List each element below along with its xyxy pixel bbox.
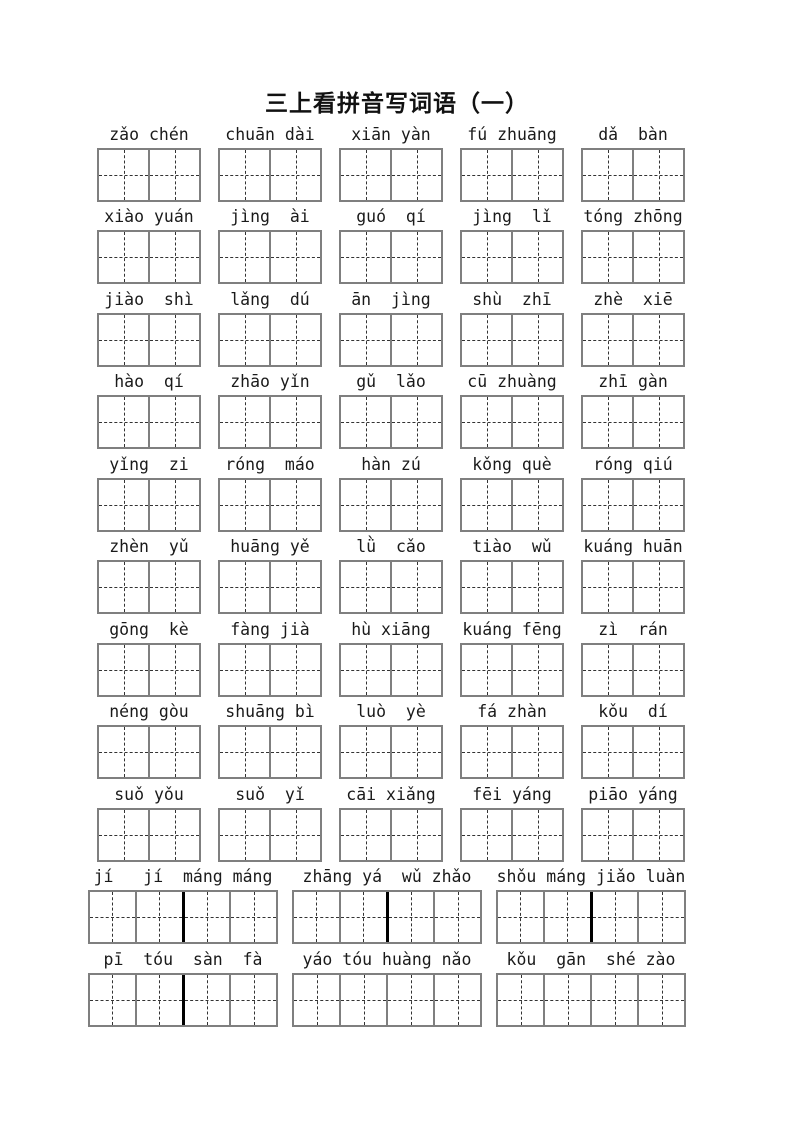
word-block: hù xiāng: [339, 614, 443, 697]
word-block: tiào wǔ: [460, 532, 564, 615]
writing-cell: [341, 480, 390, 530]
writing-grid: [339, 808, 443, 862]
writing-cell: [632, 480, 683, 530]
word-block: ān jìng: [339, 284, 443, 367]
writing-cell: [220, 315, 269, 365]
writing-cell: [269, 232, 320, 282]
writing-cell: [148, 810, 199, 860]
writing-grid: [339, 230, 443, 284]
writing-grid: [581, 313, 685, 367]
pinyin-label: jiào shì: [97, 287, 201, 313]
pinyin-label: jìng ài: [218, 204, 322, 230]
pinyin-label: zhèn yǔ: [97, 534, 201, 560]
writing-cell: [229, 892, 276, 942]
writing-cell: [386, 975, 433, 1025]
word-block: piāo yáng: [581, 779, 685, 862]
writing-cell: [390, 397, 441, 447]
writing-grid: [581, 478, 685, 532]
writing-grid: [218, 148, 322, 202]
pinyin-grid-row: hào qízhāo yǐngǔ lǎocū zhuàngzhī gàn: [0, 367, 794, 450]
word-block: néng gòu: [97, 697, 201, 780]
writing-cell: [590, 892, 638, 942]
writing-cell: [99, 562, 148, 612]
writing-grid: [97, 313, 201, 367]
pinyin-label: shuāng bì: [218, 699, 322, 725]
pinyin-label: kuáng huān: [581, 534, 685, 560]
writing-grid: [496, 890, 686, 944]
writing-cell: [341, 315, 390, 365]
pinyin-grid-row: gōng kèfàng jiàhù xiāngkuáng fēngzì rán: [0, 614, 794, 697]
writing-grid: [218, 395, 322, 449]
writing-cell: [269, 562, 320, 612]
writing-grid: [97, 808, 201, 862]
pinyin-grid-row: yǐng ziróng máohàn zúkǒng quèróng qiú: [0, 449, 794, 532]
writing-cell: [99, 315, 148, 365]
writing-grid: [460, 148, 564, 202]
writing-grid: [97, 478, 201, 532]
writing-cell: [99, 645, 148, 695]
word-block: kǒu gān shé zào: [496, 944, 686, 1027]
writing-cell: [220, 397, 269, 447]
page-title: 三上看拼音写词语（一）: [0, 84, 794, 118]
writing-grid: [218, 478, 322, 532]
word-block: jiào shì: [97, 284, 201, 367]
writing-cell: [90, 975, 135, 1025]
pinyin-label: yǐng zi: [97, 452, 201, 478]
writing-cell: [543, 975, 590, 1025]
writing-cell: [90, 892, 135, 942]
pinyin-label: suǒ yǒu: [97, 782, 201, 808]
pinyin-label: jìng lǐ: [460, 204, 564, 230]
pinyin-label: hù xiāng: [339, 617, 443, 643]
pinyin-grid-row: xiào yuánjìng àiguó qíjìng lǐtóng zhōng: [0, 202, 794, 285]
writing-cell: [511, 727, 562, 777]
writing-grid: [292, 973, 482, 1027]
word-block: gǔ lǎo: [339, 367, 443, 450]
pinyin-label: xiān yàn: [339, 122, 443, 148]
pinyin-label: róng qiú: [581, 452, 685, 478]
writing-cell: [294, 975, 339, 1025]
writing-grid: [496, 973, 686, 1027]
writing-cell: [632, 727, 683, 777]
pinyin-label: kǒng què: [460, 452, 564, 478]
writing-cell: [637, 975, 684, 1025]
pinyin-label: lǜ cǎo: [339, 534, 443, 560]
pinyin-label: hàn zú: [339, 452, 443, 478]
word-block: kuáng huān: [581, 532, 685, 615]
word-block: fá zhàn: [460, 697, 564, 780]
writing-cell: [637, 892, 684, 942]
word-block: zhāng yá wǔ zhǎo: [292, 862, 482, 945]
writing-cell: [135, 892, 182, 942]
writing-cell: [583, 397, 632, 447]
writing-grid: [339, 560, 443, 614]
writing-cell: [632, 315, 683, 365]
writing-grid: [581, 808, 685, 862]
pinyin-label: cū zhuàng: [460, 369, 564, 395]
word-block: jìng ài: [218, 202, 322, 285]
writing-cell: [583, 480, 632, 530]
word-block: shǒu máng jiǎo luàn: [496, 862, 686, 945]
writing-grid: [218, 560, 322, 614]
pinyin-grid-row: zǎo chénchuān dàixiān yànfú zhuāngdǎ bàn: [0, 119, 794, 202]
word-block: cū zhuàng: [460, 367, 564, 450]
writing-cell: [583, 232, 632, 282]
pinyin-label: luò yè: [339, 699, 443, 725]
writing-cell: [148, 232, 199, 282]
writing-grid: [460, 313, 564, 367]
writing-cell: [632, 810, 683, 860]
pinyin-label: zhāo yǐn: [218, 369, 322, 395]
writing-cell: [220, 480, 269, 530]
pinyin-label: cāi xiǎng: [339, 782, 443, 808]
writing-cell: [433, 975, 480, 1025]
word-block: fēi yáng: [460, 779, 564, 862]
word-block: zhī gàn: [581, 367, 685, 450]
writing-cell: [99, 397, 148, 447]
word-block: jí jí máng máng: [88, 862, 278, 945]
pinyin-label: yáo tóu huàng nǎo: [292, 947, 482, 973]
writing-grid: [97, 148, 201, 202]
word-block: xiào yuán: [97, 202, 201, 285]
pinyin-label: piāo yáng: [581, 782, 685, 808]
pinyin-label: tóng zhōng: [581, 204, 685, 230]
writing-cell: [148, 315, 199, 365]
writing-grid: [339, 148, 443, 202]
writing-cell: [341, 727, 390, 777]
writing-cell: [220, 645, 269, 695]
word-block: zhè xiē: [581, 284, 685, 367]
pinyin-label: kǒu dí: [581, 699, 685, 725]
writing-cell: [339, 975, 386, 1025]
pinyin-label: fá zhàn: [460, 699, 564, 725]
writing-cell: [543, 892, 590, 942]
worksheet-body: zǎo chénchuān dàixiān yànfú zhuāngdǎ bàn…: [0, 119, 794, 1027]
writing-cell: [99, 150, 148, 200]
pinyin-label: ān jìng: [339, 287, 443, 313]
writing-grid: [581, 148, 685, 202]
writing-cell: [386, 892, 434, 942]
writing-cell: [498, 892, 543, 942]
writing-grid: [97, 643, 201, 697]
writing-cell: [390, 562, 441, 612]
writing-grid: [460, 230, 564, 284]
pinyin-label: kǒu gān shé zào: [496, 947, 686, 973]
writing-cell: [220, 150, 269, 200]
writing-cell: [294, 892, 339, 942]
writing-cell: [390, 727, 441, 777]
pinyin-label: fēi yáng: [460, 782, 564, 808]
word-block: kǒu dí: [581, 697, 685, 780]
pinyin-label: shǒu máng jiǎo luàn: [496, 864, 686, 890]
pinyin-label: fú zhuāng: [460, 122, 564, 148]
pinyin-label: chuān dài: [218, 122, 322, 148]
word-block: huāng yě: [218, 532, 322, 615]
pinyin-label: shù zhī: [460, 287, 564, 313]
writing-cell: [632, 397, 683, 447]
writing-grid: [460, 478, 564, 532]
writing-grid: [292, 890, 482, 944]
pinyin-grid-row: jí jí máng mángzhāng yá wǔ zhǎoshǒu máng…: [0, 862, 794, 945]
word-block: yáo tóu huàng nǎo: [292, 944, 482, 1027]
writing-cell: [148, 562, 199, 612]
writing-cell: [462, 232, 511, 282]
pinyin-label: zhī gàn: [581, 369, 685, 395]
word-block: zhāo yǐn: [218, 367, 322, 450]
pinyin-label: dǎ bàn: [581, 122, 685, 148]
pinyin-grid-row: zhèn yǔhuāng yělǜ cǎotiào wǔkuáng huān: [0, 532, 794, 615]
word-block: yǐng zi: [97, 449, 201, 532]
word-block: suǒ yǐ: [218, 779, 322, 862]
writing-cell: [583, 727, 632, 777]
pinyin-label: pī tóu sàn fà: [88, 947, 278, 973]
writing-grid: [88, 973, 278, 1027]
word-block: zhèn yǔ: [97, 532, 201, 615]
word-block: guó qí: [339, 202, 443, 285]
worksheet-page: 三上看拼音写词语（一） zǎo chénchuān dàixiān yànfú …: [0, 0, 794, 1122]
word-block: shuāng bì: [218, 697, 322, 780]
writing-cell: [511, 150, 562, 200]
writing-grid: [97, 560, 201, 614]
writing-cell: [341, 645, 390, 695]
writing-cell: [632, 562, 683, 612]
word-block: hàn zú: [339, 449, 443, 532]
writing-cell: [390, 480, 441, 530]
word-block: kǒng què: [460, 449, 564, 532]
writing-grid: [581, 643, 685, 697]
writing-cell: [390, 232, 441, 282]
writing-cell: [269, 810, 320, 860]
pinyin-label: gōng kè: [97, 617, 201, 643]
writing-cell: [583, 315, 632, 365]
pinyin-label: zhè xiē: [581, 287, 685, 313]
writing-cell: [269, 315, 320, 365]
pinyin-grid-row: pī tóu sàn fàyáo tóu huàng nǎokǒu gān sh…: [0, 944, 794, 1027]
writing-cell: [99, 810, 148, 860]
word-block: jìng lǐ: [460, 202, 564, 285]
word-block: shù zhī: [460, 284, 564, 367]
writing-cell: [583, 150, 632, 200]
word-block: zì rán: [581, 614, 685, 697]
writing-cell: [269, 150, 320, 200]
writing-grid: [581, 560, 685, 614]
writing-cell: [632, 645, 683, 695]
writing-grid: [339, 395, 443, 449]
pinyin-label: zì rán: [581, 617, 685, 643]
writing-grid: [460, 560, 564, 614]
writing-cell: [99, 480, 148, 530]
word-block: cāi xiǎng: [339, 779, 443, 862]
word-block: luò yè: [339, 697, 443, 780]
writing-grid: [97, 230, 201, 284]
writing-grid: [218, 313, 322, 367]
writing-cell: [511, 645, 562, 695]
writing-grid: [339, 643, 443, 697]
writing-cell: [511, 810, 562, 860]
word-block: róng qiú: [581, 449, 685, 532]
pinyin-grid-row: suǒ yǒusuǒ yǐcāi xiǎngfēi yángpiāo yáng: [0, 779, 794, 862]
writing-grid: [97, 725, 201, 779]
word-block: zǎo chén: [97, 119, 201, 202]
writing-cell: [511, 480, 562, 530]
pinyin-label: fàng jià: [218, 617, 322, 643]
word-block: tóng zhōng: [581, 202, 685, 285]
writing-cell: [632, 150, 683, 200]
writing-cell: [229, 975, 276, 1025]
writing-cell: [99, 232, 148, 282]
writing-cell: [511, 315, 562, 365]
writing-grid: [218, 643, 322, 697]
writing-cell: [269, 727, 320, 777]
writing-cell: [462, 315, 511, 365]
writing-grid: [218, 808, 322, 862]
writing-cell: [148, 645, 199, 695]
writing-cell: [99, 727, 148, 777]
pinyin-label: kuáng fēng: [460, 617, 564, 643]
writing-grid: [581, 230, 685, 284]
writing-cell: [590, 975, 637, 1025]
writing-grid: [339, 478, 443, 532]
writing-grid: [581, 725, 685, 779]
writing-cell: [220, 727, 269, 777]
writing-cell: [390, 645, 441, 695]
writing-cell: [341, 232, 390, 282]
writing-cell: [390, 150, 441, 200]
pinyin-label: róng máo: [218, 452, 322, 478]
writing-cell: [269, 645, 320, 695]
writing-grid: [339, 313, 443, 367]
pinyin-label: tiào wǔ: [460, 534, 564, 560]
pinyin-grid-row: néng gòushuāng bìluò yèfá zhànkǒu dí: [0, 697, 794, 780]
pinyin-label: huāng yě: [218, 534, 322, 560]
pinyin-label: gǔ lǎo: [339, 369, 443, 395]
writing-cell: [135, 975, 182, 1025]
pinyin-label: zǎo chén: [97, 122, 201, 148]
writing-grid: [460, 643, 564, 697]
pinyin-label: lǎng dú: [218, 287, 322, 313]
writing-grid: [460, 395, 564, 449]
writing-cell: [390, 810, 441, 860]
writing-cell: [182, 892, 230, 942]
writing-cell: [341, 810, 390, 860]
writing-cell: [462, 150, 511, 200]
word-block: suǒ yǒu: [97, 779, 201, 862]
writing-cell: [341, 150, 390, 200]
writing-grid: [460, 808, 564, 862]
writing-cell: [339, 892, 386, 942]
writing-cell: [341, 397, 390, 447]
pinyin-label: zhāng yá wǔ zhǎo: [292, 864, 482, 890]
word-block: xiān yàn: [339, 119, 443, 202]
writing-cell: [511, 397, 562, 447]
writing-cell: [462, 645, 511, 695]
writing-grid: [88, 890, 278, 944]
writing-cell: [583, 645, 632, 695]
writing-cell: [583, 810, 632, 860]
word-block: dǎ bàn: [581, 119, 685, 202]
writing-cell: [148, 397, 199, 447]
word-block: fú zhuāng: [460, 119, 564, 202]
writing-cell: [220, 810, 269, 860]
writing-cell: [462, 480, 511, 530]
writing-grid: [218, 725, 322, 779]
writing-cell: [632, 232, 683, 282]
word-block: lǜ cǎo: [339, 532, 443, 615]
writing-cell: [220, 562, 269, 612]
word-block: róng máo: [218, 449, 322, 532]
writing-cell: [511, 232, 562, 282]
writing-cell: [148, 150, 199, 200]
writing-grid: [339, 725, 443, 779]
writing-cell: [269, 397, 320, 447]
writing-grid: [581, 395, 685, 449]
writing-cell: [148, 727, 199, 777]
writing-cell: [433, 892, 480, 942]
pinyin-label: suǒ yǐ: [218, 782, 322, 808]
writing-cell: [462, 397, 511, 447]
pinyin-label: néng gòu: [97, 699, 201, 725]
word-block: kuáng fēng: [460, 614, 564, 697]
writing-cell: [341, 562, 390, 612]
word-block: chuān dài: [218, 119, 322, 202]
writing-cell: [390, 315, 441, 365]
writing-cell: [462, 810, 511, 860]
writing-grid: [460, 725, 564, 779]
pinyin-label: guó qí: [339, 204, 443, 230]
writing-cell: [462, 562, 511, 612]
word-block: hào qí: [97, 367, 201, 450]
writing-cell: [148, 480, 199, 530]
word-block: pī tóu sàn fà: [88, 944, 278, 1027]
pinyin-label: hào qí: [97, 369, 201, 395]
word-block: fàng jià: [218, 614, 322, 697]
pinyin-grid-row: jiào shìlǎng dúān jìngshù zhīzhè xiē: [0, 284, 794, 367]
writing-grid: [218, 230, 322, 284]
writing-cell: [269, 480, 320, 530]
writing-cell: [462, 727, 511, 777]
pinyin-label: jí jí máng máng: [88, 864, 278, 890]
writing-cell: [583, 562, 632, 612]
pinyin-label: xiào yuán: [97, 204, 201, 230]
writing-cell: [511, 562, 562, 612]
word-block: gōng kè: [97, 614, 201, 697]
writing-cell: [220, 232, 269, 282]
writing-cell: [498, 975, 543, 1025]
writing-cell: [182, 975, 230, 1025]
writing-grid: [97, 395, 201, 449]
word-block: lǎng dú: [218, 284, 322, 367]
